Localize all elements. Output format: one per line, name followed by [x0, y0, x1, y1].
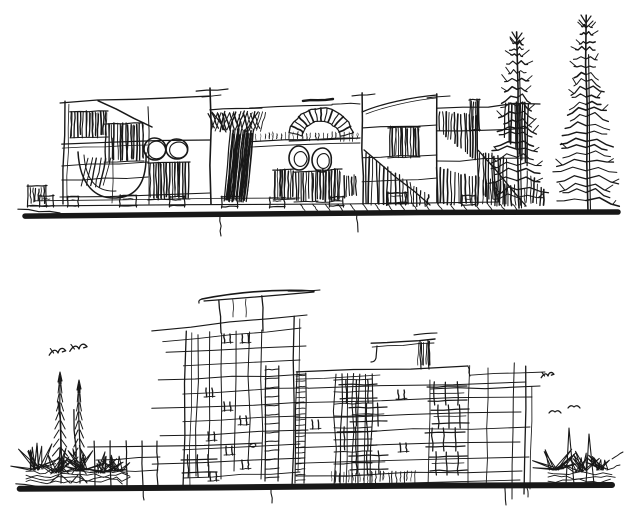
sketch-stroke [375, 471, 376, 484]
bottom-elevation-sketch [11, 290, 623, 505]
window-mark [396, 398, 407, 399]
sketch-stroke [298, 319, 300, 472]
window-mark [224, 334, 225, 343]
window-grid [443, 428, 444, 451]
sketch-stroke [352, 94, 375, 96]
sketch-stroke [346, 176, 347, 197]
sketch-stroke [339, 473, 340, 482]
sketch-stroke [379, 164, 380, 205]
sketch-stroke [296, 172, 297, 200]
sketch-stroke [306, 172, 307, 202]
sketch-stroke [472, 177, 473, 206]
sketch-stroke [185, 163, 186, 198]
ladder-rung [296, 392, 305, 393]
sketch-stroke [388, 157, 420, 158]
right-wing [296, 363, 545, 499]
tree-twig [573, 78, 577, 84]
window-mark [246, 416, 247, 425]
sketch-stroke [273, 201, 281, 202]
floor-line [296, 442, 520, 448]
ladder-rung [265, 369, 279, 370]
sketch-stroke [68, 196, 69, 207]
sketch-stroke [447, 169, 448, 204]
sketch-stroke [519, 105, 520, 155]
sketch-stroke [536, 184, 537, 204]
cypress [80, 439, 84, 447]
sketch-stroke [351, 177, 352, 195]
cypress [61, 403, 64, 411]
ladder-rung [296, 436, 305, 437]
window-mark [240, 468, 251, 469]
facade-line [208, 332, 210, 466]
tree-branch [586, 168, 617, 173]
tree-branch [553, 167, 586, 172]
sketch-stroke [514, 185, 516, 205]
right-shrubs [533, 428, 623, 484]
window-mark [210, 472, 211, 481]
sketch-stroke [507, 159, 509, 206]
sketch-stroke [303, 173, 304, 201]
ground-thick [20, 485, 612, 489]
sketch-stroke [383, 167, 384, 204]
sketch-stroke [164, 164, 165, 199]
sketch-stroke [527, 488, 528, 497]
ground-tick [438, 204, 443, 211]
tree-twig [602, 105, 608, 111]
left-shrubs-and-cypress [11, 372, 262, 486]
tree-branch [580, 33, 586, 35]
tree-branch [586, 73, 598, 80]
sketch-stroke [323, 170, 324, 200]
window-grid [432, 428, 433, 451]
sketch-stroke [169, 205, 185, 206]
sketch-stroke [451, 114, 453, 139]
sketch-stroke [470, 372, 545, 375]
ladder-rung [296, 474, 305, 475]
ground-tick [375, 204, 380, 210]
tree-twig [533, 125, 539, 132]
tree-twig [576, 40, 581, 44]
sketch-stroke [368, 156, 369, 203]
window-grid [349, 455, 388, 456]
sketch-stroke [288, 171, 289, 199]
sketch-stroke [277, 134, 278, 139]
round-window [170, 142, 188, 158]
sketch-stroke [402, 128, 403, 157]
tree-twig [536, 161, 542, 166]
window-mark [400, 443, 401, 452]
sketch-stroke [156, 164, 157, 197]
floor-line [152, 402, 304, 408]
canopy-post [233, 300, 234, 317]
window-grid [426, 446, 465, 447]
ladder-rung [265, 477, 279, 478]
floor-line [296, 427, 530, 433]
sketch-stroke [303, 99, 333, 101]
floor-line [160, 430, 308, 436]
ladder-rung [265, 396, 279, 397]
tree-branch [574, 73, 586, 78]
window-grid [181, 459, 217, 460]
canopy-hook [199, 299, 202, 303]
window-mark [310, 428, 321, 429]
ladder-rung [265, 432, 279, 433]
facade-line [234, 331, 236, 471]
window-grid [355, 427, 356, 450]
ladder-rung [296, 452, 305, 453]
cypress [76, 412, 78, 420]
sketch-stroke [459, 173, 460, 203]
floor-line [183, 416, 300, 422]
sketch-stroke [39, 196, 54, 197]
sketch-stroke [104, 123, 144, 124]
sketch-stroke [327, 134, 328, 139]
sketch-stroke [429, 342, 430, 365]
sketch-stroke [443, 170, 444, 204]
bird [49, 348, 65, 355]
sketch-stroke [407, 129, 408, 156]
window-mark [398, 390, 399, 399]
tree-branch [586, 66, 595, 68]
sketch-stroke [123, 199, 133, 200]
window-grid [432, 463, 464, 464]
tree-trunk [589, 55, 591, 212]
window-grid [366, 403, 367, 426]
window-mark [242, 460, 243, 469]
core-line [333, 374, 336, 486]
ladder-rung [296, 441, 305, 442]
shrub-scribble [548, 472, 612, 475]
sketch-stroke [70, 111, 108, 112]
floor-line [183, 444, 300, 450]
core-rung [334, 379, 372, 380]
cypress [61, 421, 65, 429]
floor-line [183, 360, 300, 366]
window-mark [226, 446, 227, 455]
oval-window [294, 152, 307, 167]
fence-rail [88, 443, 262, 447]
sketch-stroke [298, 173, 299, 201]
tree-branch [563, 153, 586, 158]
tree-branch [507, 61, 517, 64]
sketch-stroke [377, 161, 378, 203]
sketch-stroke [150, 164, 151, 197]
tree-twig [595, 54, 598, 60]
sketch-stroke [173, 200, 181, 201]
sketch-stroke [296, 366, 468, 372]
ground-tick [388, 204, 393, 211]
ladder-rung [296, 408, 305, 409]
ground-line [18, 185, 618, 236]
tree-twig [505, 51, 512, 55]
window-mark [240, 416, 241, 425]
canopy-post [262, 296, 263, 331]
sketch-stroke [35, 189, 36, 202]
sketch-stroke [188, 163, 189, 198]
sketch-stroke [293, 171, 294, 196]
sketch-stroke [612, 452, 623, 459]
sketch-stroke [291, 169, 292, 198]
cypress [57, 394, 59, 402]
window-grid [346, 380, 347, 403]
sketch-stroke [353, 473, 354, 480]
sketch-stroke [270, 197, 271, 208]
tree-branch [557, 199, 586, 201]
cypress [77, 394, 78, 402]
arch-hatch [340, 133, 353, 136]
sketch-stroke [360, 473, 361, 482]
tree-branch [557, 159, 586, 166]
floor-line [183, 388, 308, 394]
sketch-stroke [469, 115, 470, 156]
window-mark [398, 451, 409, 452]
sketch-stroke [273, 133, 274, 139]
sketch-stroke [297, 132, 298, 139]
roof-pergola [371, 333, 437, 369]
ladder-rung [296, 397, 305, 398]
sketch-stroke [389, 473, 390, 483]
cypress [61, 412, 64, 420]
tree-branch [571, 86, 586, 95]
tree-branch [561, 138, 587, 144]
tree-twig [502, 88, 508, 92]
cypress [80, 394, 81, 402]
window-grid [352, 462, 385, 463]
tree-twig [522, 50, 530, 56]
sketch-stroke [256, 134, 257, 140]
window-mark [208, 480, 219, 481]
sketch-stroke [62, 140, 210, 144]
ground-tick [363, 204, 368, 211]
sketch-stroke [28, 185, 29, 207]
arch-hatch [321, 108, 322, 121]
sketch-stroke [323, 133, 324, 139]
sketch-stroke [390, 126, 391, 155]
sketch-stroke [320, 170, 321, 198]
window-mark [248, 334, 249, 343]
sketch-stroke [166, 163, 167, 197]
shrub-spike [544, 452, 556, 470]
ground-tick [300, 204, 305, 210]
tree-twig [529, 105, 535, 110]
sketch-stroke [40, 195, 41, 207]
ladder-rail [265, 366, 266, 481]
tree-twig [529, 119, 536, 126]
core-rung [334, 439, 372, 440]
tree-branch [586, 42, 595, 44]
window-grid [356, 380, 357, 403]
tree-twig [526, 76, 532, 81]
arch-hatch [289, 133, 302, 137]
sketch-stroke [344, 176, 345, 198]
sketch-stroke [38, 189, 39, 201]
sketch-stroke [163, 328, 301, 342]
sketch-stroke [119, 206, 137, 207]
cypress [61, 430, 66, 438]
round-window [148, 141, 166, 159]
sketch-stroke [103, 111, 104, 134]
window-grid [430, 393, 464, 394]
sketch-stroke [277, 168, 278, 198]
cypress [80, 430, 84, 438]
sketch-stroke [400, 175, 402, 205]
sketch-stroke [436, 168, 437, 203]
sketch-stroke [414, 333, 437, 335]
sketch-stroke [33, 188, 34, 202]
sketch-stroke [82, 112, 83, 138]
sketch-stroke [403, 179, 404, 203]
ground-tick [350, 204, 355, 211]
sketch-stroke [315, 172, 316, 200]
sketch-stroke [392, 471, 393, 482]
sketch-stroke [152, 315, 307, 331]
ladder-rung [265, 405, 279, 406]
ladder-rung [265, 378, 279, 379]
arch-hatch [339, 126, 351, 132]
sketch-stroke [334, 169, 335, 201]
sketch-stroke [63, 101, 65, 204]
tree-branch [510, 49, 518, 50]
sketch-stroke [425, 192, 426, 206]
ladder-rung [296, 469, 305, 470]
cypress [75, 421, 78, 429]
ground-tick [312, 204, 317, 211]
shrub-scribble [548, 475, 615, 479]
sketch-stroke [337, 169, 338, 199]
ladder-rung [265, 423, 279, 424]
window-mark [248, 460, 249, 469]
sketch-stroke [396, 129, 397, 155]
sketch-stroke [105, 126, 106, 161]
arch-hatch [325, 109, 328, 122]
sketch-page [0, 0, 640, 509]
sketch-stroke [113, 123, 114, 159]
window-grid [197, 455, 198, 477]
tree-branch [499, 132, 517, 135]
window-grid [432, 423, 469, 424]
sketch-stroke [294, 201, 318, 202]
cypress [53, 439, 59, 447]
sketch-stroke [415, 129, 416, 156]
cypress [80, 412, 82, 420]
ladder-rail [304, 373, 306, 483]
tree-twig [569, 90, 574, 94]
tree-branch [574, 57, 587, 60]
roof-swoosh [362, 95, 437, 112]
window-mark [318, 420, 319, 429]
window-grid [446, 452, 447, 475]
window-grid [455, 428, 456, 451]
sketch-stroke [492, 153, 493, 199]
floor-line [296, 471, 522, 476]
cypress [54, 430, 59, 438]
window-grid [427, 386, 467, 387]
sketch-stroke [74, 112, 75, 138]
ladder-rung [265, 414, 279, 415]
sketch-stroke [122, 123, 123, 160]
tree-twig [556, 159, 563, 165]
ladder-rung [265, 450, 279, 451]
cypress [77, 403, 78, 411]
sketch-stroke [169, 163, 170, 199]
sketch-stroke [464, 113, 465, 151]
tower-block [152, 315, 308, 487]
canopy-post [246, 299, 247, 317]
sketch-stroke [67, 104, 69, 200]
tree-top [581, 15, 586, 23]
tree-twig [560, 184, 565, 191]
floor-line [158, 374, 306, 380]
cypress [80, 403, 81, 411]
sketch-stroke [392, 127, 393, 156]
edge-line [512, 363, 514, 499]
tree-branch [491, 162, 517, 169]
window-mark [212, 388, 213, 397]
sketch-stroke [27, 186, 47, 187]
sketch-stroke [427, 96, 450, 98]
core-rung [334, 427, 372, 428]
sketch-stroke [448, 113, 449, 140]
cypress [61, 385, 62, 393]
window-grid [339, 384, 377, 385]
tree-twig [570, 61, 577, 67]
sketch-stroke [273, 169, 295, 170]
sketch-stroke [127, 125, 128, 160]
core-line [340, 374, 343, 486]
sketch-stroke [60, 96, 210, 103]
tree-branch [574, 79, 586, 86]
sketch-stroke [420, 191, 421, 205]
window-grid [429, 456, 467, 457]
window-grid [352, 414, 384, 415]
sketch-stroke [316, 201, 342, 203]
sketch-stroke [80, 112, 81, 135]
sketch-stroke [387, 193, 407, 194]
tree-twig [591, 31, 598, 35]
sketch-stroke [462, 205, 477, 206]
core-line [352, 374, 354, 487]
tree-twig [506, 67, 511, 73]
fence-post [142, 441, 143, 486]
window-grid [367, 427, 368, 450]
sketch-stroke [196, 89, 228, 91]
sketch-stroke [356, 177, 357, 196]
sketch-stroke [210, 108, 262, 110]
window-grid [350, 469, 388, 470]
sketch-stroke [607, 465, 620, 470]
cypress [56, 412, 59, 420]
ladder-rung [296, 419, 305, 420]
sketch-stroke [486, 368, 488, 488]
tree-branch [517, 94, 531, 103]
sketch-stroke [398, 128, 399, 158]
tree-twig [597, 92, 601, 98]
tree-trunk [586, 15, 588, 212]
sketch-stroke [454, 173, 455, 205]
ground-line [16, 484, 612, 505]
sketch-stroke [504, 103, 505, 137]
window-mark [404, 390, 405, 399]
sketch-stroke [505, 488, 506, 505]
tree-branch [565, 122, 586, 128]
window-mark [230, 402, 231, 411]
sketch-stroke [273, 199, 295, 200]
window-grid [344, 427, 345, 450]
window-mark [222, 342, 233, 343]
tree-twig [613, 201, 616, 205]
sketch-stroke [440, 168, 441, 203]
sketch-stroke [410, 127, 411, 158]
